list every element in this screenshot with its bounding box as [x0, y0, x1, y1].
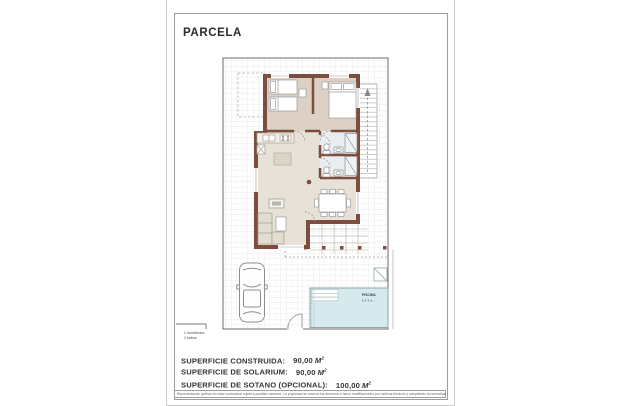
dining-table: [319, 194, 346, 212]
kitchen-island: [274, 153, 291, 165]
kitchen-sink: [263, 135, 269, 141]
area-unit: M2: [362, 381, 371, 390]
floor-plan-drawing: PISCINA 6 X 3 m: [0, 0, 620, 406]
area-label: SUPERFICIE CONSTRUIDA:: [181, 356, 285, 365]
nightstand: [322, 82, 328, 89]
pool-label: PISCINA: [362, 293, 376, 297]
side-mirror: [237, 285, 240, 289]
area-label: SUPERFICIE DE SOLARIUM:: [181, 368, 288, 377]
area-value: 90,00: [293, 356, 313, 365]
stove: [280, 135, 291, 141]
area-unit: M2: [315, 356, 324, 365]
area-unit: M2: [318, 368, 327, 377]
area-label: SUPERFICIE DE SOTANO (OPCIONAL):: [181, 381, 328, 390]
plan-legend: 2 dormitorios. 2 baños: [184, 331, 205, 341]
pillow: [271, 99, 276, 110]
pool-steps: [312, 290, 338, 301]
boundary-step: [176, 324, 206, 329]
legend-baths: 2 baños: [184, 336, 205, 341]
area-row-sotano: SUPERFICIE DE SOTANO (OPCIONAL):100,00M2: [181, 380, 371, 390]
area-row-construida: SUPERFICIE CONSTRUIDA:90,00M2: [181, 356, 324, 366]
car-top-view: [237, 263, 267, 322]
exterior-stairs: [358, 84, 377, 178]
pillow: [344, 84, 355, 90]
sofa: [258, 213, 272, 244]
area-value: 90,00: [296, 368, 316, 377]
nightstand: [299, 89, 306, 97]
area-row-solarium: SUPERFICIE DE SOLARIUM:90,00M2: [181, 367, 327, 377]
toilet: [324, 167, 330, 173]
toilet-tank: [323, 174, 330, 178]
toilet-tank: [323, 151, 330, 155]
toilet: [324, 144, 330, 150]
disclaimer-text: Representación gráfica sin valor contrac…: [174, 390, 446, 398]
structural-column: [307, 180, 312, 185]
side-mirror: [264, 285, 267, 289]
sofa-chaise: [272, 232, 284, 244]
coffee-table: [276, 217, 286, 231]
scanned-plan-page: PARCELA: [0, 0, 620, 406]
pool-size-label: 6 X 3 m: [362, 299, 373, 303]
pillow: [331, 84, 342, 90]
area-value: 100,00: [336, 381, 360, 390]
pillow: [271, 82, 276, 93]
